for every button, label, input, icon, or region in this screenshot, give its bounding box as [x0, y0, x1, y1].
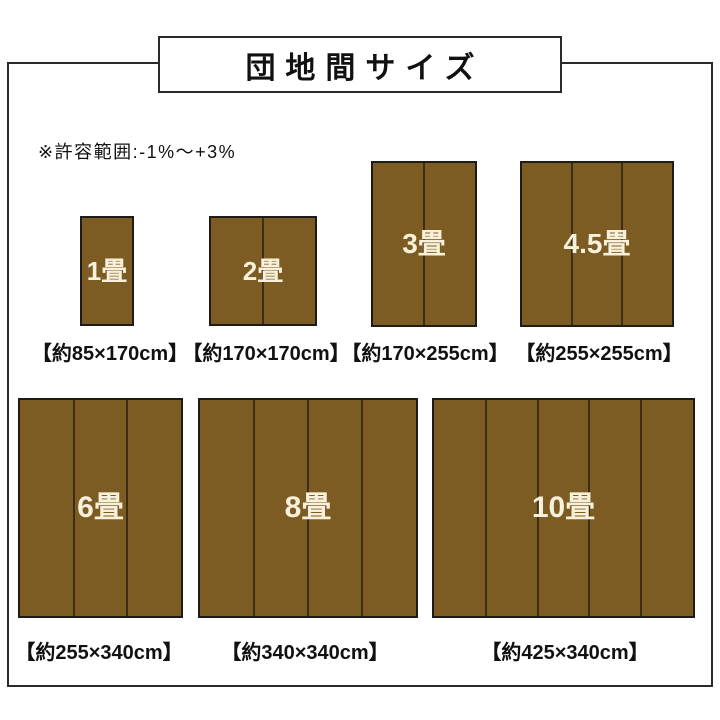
- mat-divider: [640, 400, 642, 616]
- mat-label: 4.5畳: [564, 230, 631, 258]
- mat-6jo: 6畳: [18, 398, 183, 618]
- mat-size-label: 【約425×340cm】: [481, 636, 648, 665]
- title-box: 団地間サイズ: [158, 36, 562, 93]
- mat-divider: [253, 400, 255, 616]
- mat-divider: [126, 400, 128, 616]
- page-title: 団地間サイズ: [235, 43, 484, 87]
- mat-size-label: 【約85×170cm】: [32, 337, 188, 366]
- mat-8jo: 8畳: [198, 398, 418, 618]
- mat-10jo: 10畳: [432, 398, 695, 618]
- mat-size-label: 【約170×255cm】: [341, 337, 508, 366]
- mat-size-label: 【約170×170cm】: [182, 337, 349, 366]
- mat-3jo: 3畳: [371, 161, 477, 327]
- mat-1jo: 1畳: [80, 216, 134, 326]
- mat-label: 8畳: [285, 493, 332, 523]
- mat-size-label: 【約255×340cm】: [15, 636, 182, 665]
- mat-4-5jo: 4.5畳: [520, 161, 674, 327]
- mat-divider: [361, 400, 363, 616]
- mat-label: 2畳: [243, 258, 283, 284]
- size-chart-page: 団地間サイズ ※許容範囲:-1%〜+3% 1畳 2畳 3畳 4.5畳 6畳 8畳…: [0, 0, 720, 720]
- mat-size-label: 【約255×255cm】: [515, 337, 682, 366]
- mat-divider: [73, 400, 75, 616]
- mat-size-label: 【約340×340cm】: [221, 636, 388, 665]
- mat-label: 10畳: [532, 493, 595, 523]
- mat-label: 1畳: [87, 258, 127, 284]
- mat-divider: [485, 400, 487, 616]
- mat-2jo: 2畳: [209, 216, 317, 326]
- tolerance-note: ※許容範囲:-1%〜+3%: [38, 138, 236, 164]
- mat-label: 6畳: [77, 493, 124, 523]
- mat-label: 3畳: [402, 230, 446, 258]
